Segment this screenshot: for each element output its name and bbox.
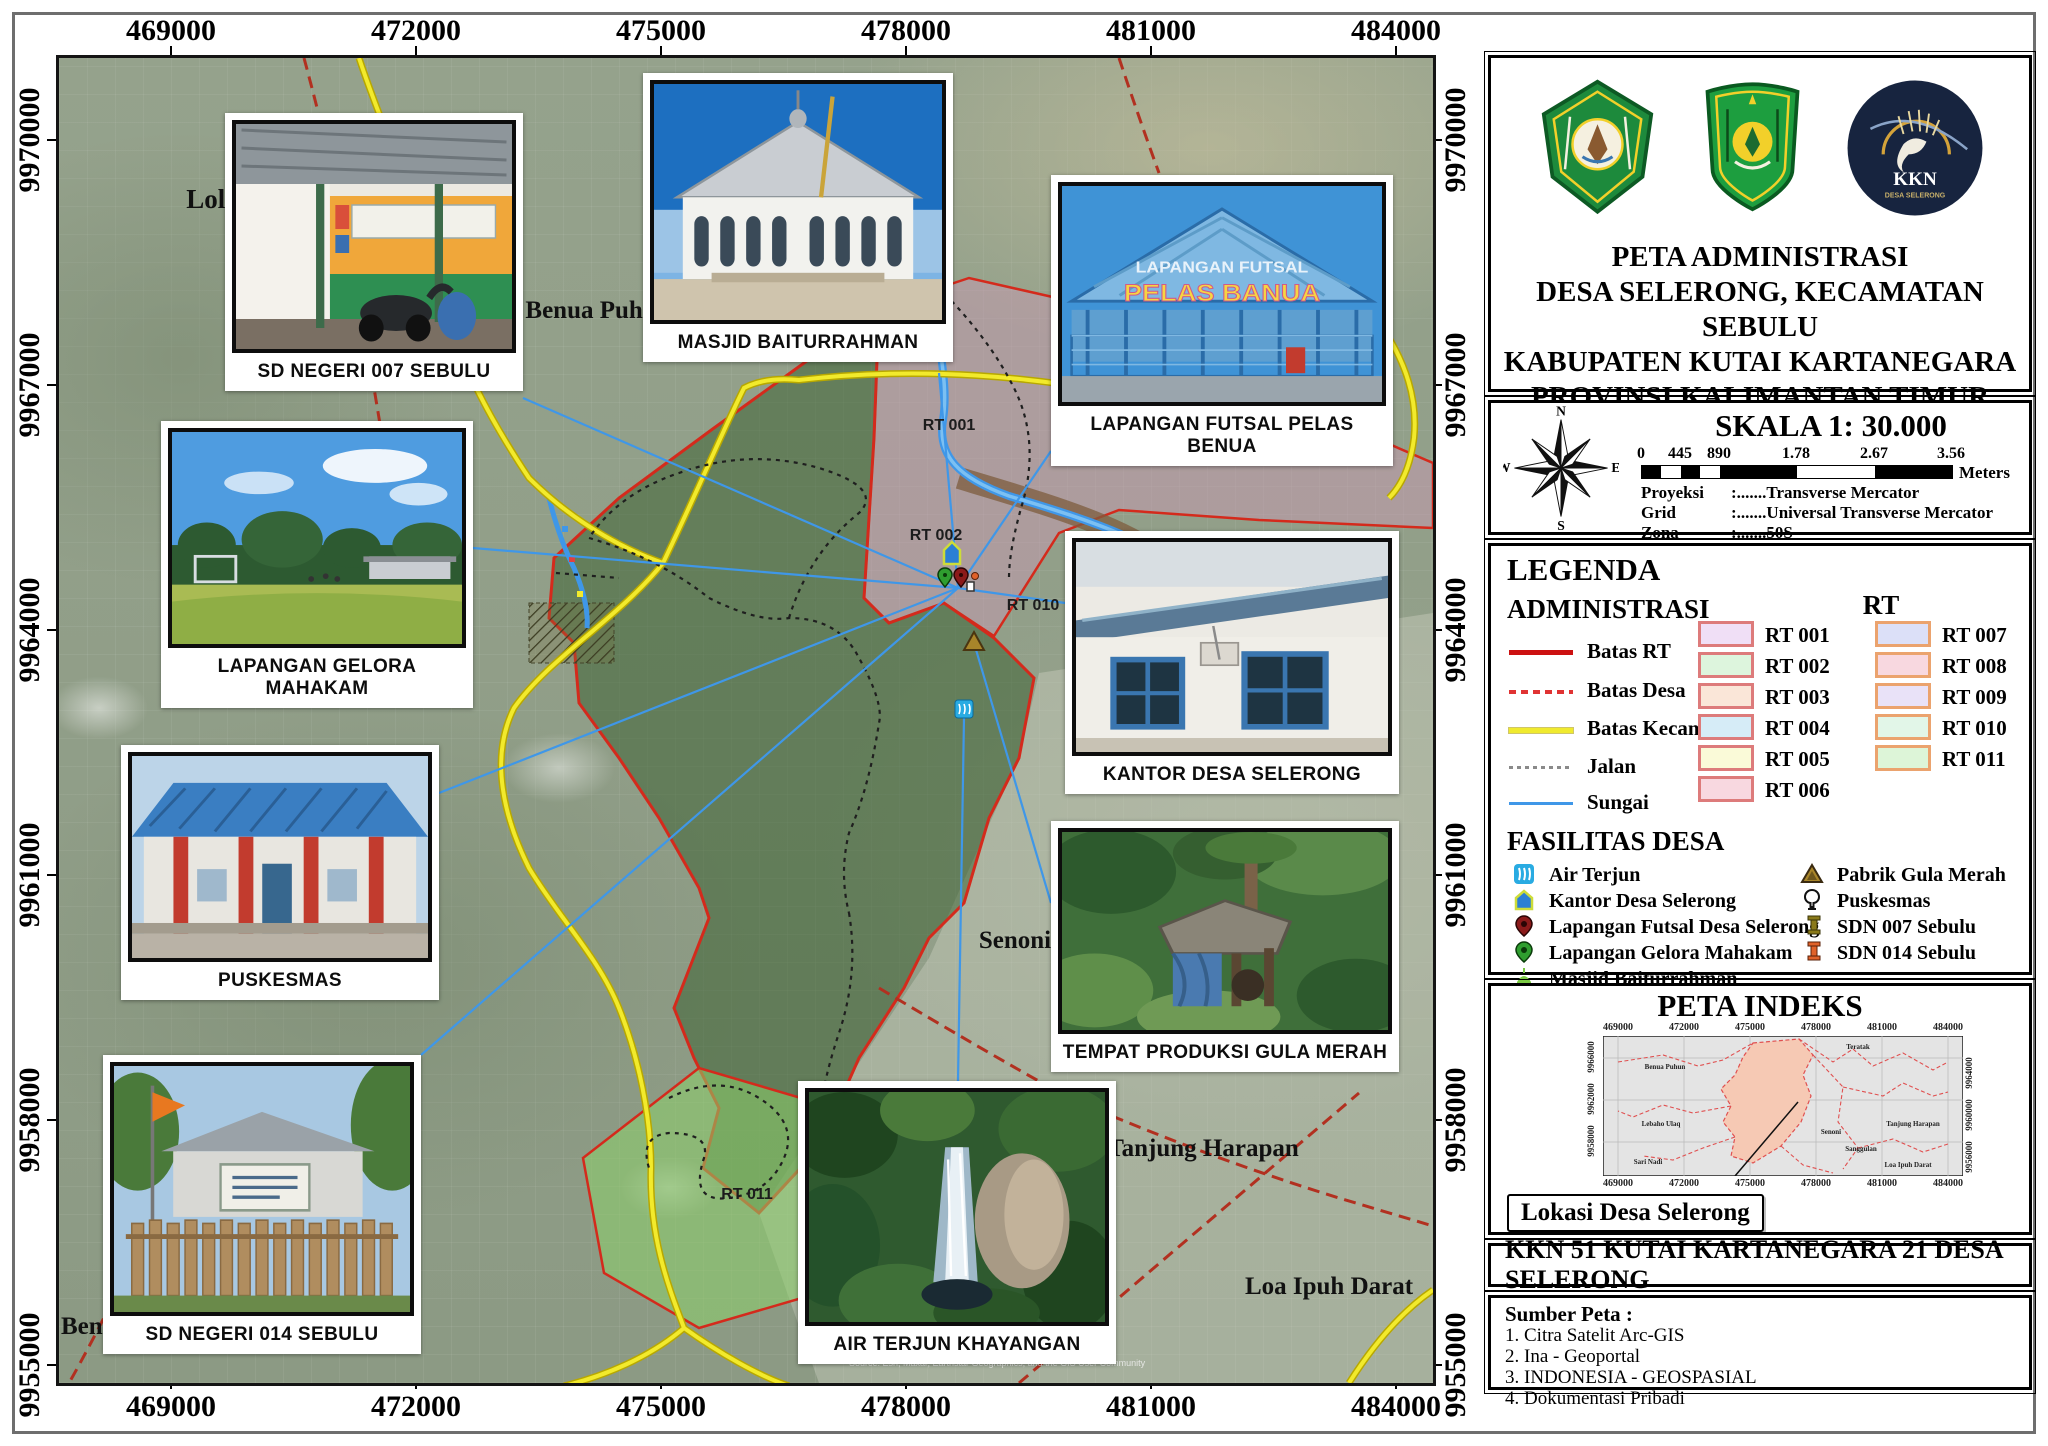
masjid-photo <box>650 80 946 324</box>
indeks-tick: 475000 <box>1735 1178 1765 1189</box>
scale-tick: 2.67 <box>1860 445 1888 463</box>
indeks-tick: 469000 <box>1603 1178 1633 1189</box>
logo-row: KKN DESA SELERONG <box>1491 78 2029 218</box>
lokasi-callout: Lokasi Desa Selerong <box>1507 1194 1764 1232</box>
indeks-y-label: 9958000 <box>1586 1111 1596 1171</box>
photo-caption: SD NEGERI 014 SEBULU <box>110 1316 414 1347</box>
photo-card-sd007: SD NEGERI 007 SEBULU <box>225 113 523 391</box>
pabrik-gula-icon <box>1799 862 1825 886</box>
lapangan-futsal-pin-icon <box>1511 914 1537 938</box>
indeks-tick: 472000 <box>1669 1022 1699 1033</box>
axis-label-y-right: 9970000 <box>1439 70 1473 210</box>
sumber-item: 2. Ina - Geoportal <box>1505 1346 1757 1367</box>
indeks-tick: 481000 <box>1867 1178 1897 1189</box>
futsal-sign-line1: LAPANGAN FUTSAL <box>1136 258 1309 276</box>
rt001-legend-label: RT 001 <box>1765 623 1830 648</box>
kkn-logo-text: KKN <box>1893 169 1937 190</box>
proj-label: Zona <box>1641 523 1731 543</box>
rt003-swatch <box>1698 683 1754 709</box>
gelora-photo <box>168 428 466 648</box>
rt010-swatch <box>1875 714 1931 740</box>
rt009-swatch <box>1875 683 1931 709</box>
proj-label: Proyeksi <box>1641 483 1731 503</box>
futsal-photo: LAPANGAN FUTSAL PELAS BANUA <box>1058 182 1386 406</box>
scale-bar <box>1641 465 1953 479</box>
scale-tick: 445 <box>1668 445 1692 463</box>
rt009-legend-label: RT 009 <box>1942 685 2007 710</box>
rt011-label: RT 011 <box>721 1186 773 1203</box>
axis-label-y-right: 9964000 <box>1439 560 1473 700</box>
airterjun-photo <box>805 1088 1109 1326</box>
sumber-item: 4. Dokumentasi Pribadi <box>1505 1388 1757 1409</box>
photo-card-futsal: LAPANGAN FUTSAL PELAS BANUA LAPANGAN FUT… <box>1051 175 1393 466</box>
indeks-place-senoni: Senoni <box>1821 1128 1841 1136</box>
indeks-tick: 478000 <box>1801 1022 1831 1033</box>
rt001-label: RT 001 <box>923 417 976 434</box>
axis-label-x-top: 475000 <box>616 14 706 48</box>
sumber-item: 3. INDONESIA - GEOSPASIAL <box>1505 1367 1757 1388</box>
axis-label-y-left: 9958000 <box>13 1050 47 1190</box>
rt004-swatch <box>1698 714 1754 740</box>
facility-label-kantor-desa: Kantor Desa Selerong <box>1549 890 1736 913</box>
title-panel: KKN DESA SELERONG PETA ADMINISTRASI DESA… <box>1488 55 2032 392</box>
logo-kabupaten-kutai-kartanegara <box>1690 78 1815 218</box>
axis-tick <box>47 139 56 141</box>
air-terjun-icon <box>1511 862 1537 886</box>
rt006-swatch <box>1698 776 1754 802</box>
sdn014-pushpin-icon <box>1801 940 1827 964</box>
photo-card-gelora: LAPANGAN GELORA MAHAKAM <box>161 421 473 708</box>
axis-label-y-left: 9961000 <box>13 805 47 945</box>
photo-card-masjid: MASJID BAITURRAHMAN <box>643 73 953 362</box>
proj-value: :.......Universal Transverse Mercator <box>1731 503 1993 523</box>
title-line-2: DESA SELERONG, KECAMATAN SEBULU <box>1491 275 2029 345</box>
indeks-tick: 472000 <box>1669 1178 1699 1189</box>
axis-label-x-bottom: 475000 <box>616 1390 706 1424</box>
photo-caption: MASJID BAITURRAHMAN <box>650 324 946 355</box>
photo-card-sd014: SD NEGERI 014 SEBULU <box>103 1055 421 1354</box>
logo-kkn-desa-selerong: KKN DESA SELERONG <box>1845 78 1985 218</box>
fasilitas-heading: FASILITAS DESA <box>1507 826 1724 857</box>
rt006-legend-label: RT 006 <box>1765 778 1830 803</box>
puskesmas-map-icon <box>967 582 974 591</box>
hatched-settlement-area <box>529 603 614 663</box>
axis-tick <box>1150 46 1152 55</box>
photo-caption: LAPANGAN GELORA MAHAKAM <box>168 648 466 701</box>
rt-heading: RT <box>1821 590 1941 621</box>
rt005-legend-label: RT 005 <box>1765 747 1830 772</box>
facility-label-puskesmas: Puskesmas <box>1837 890 1930 913</box>
rt004-legend-label: RT 004 <box>1765 716 1830 741</box>
axis-label-x-bottom: 472000 <box>371 1390 461 1424</box>
batas-kecamatan-symbol <box>1509 728 1573 733</box>
futsal-sign-line2: PELAS BANUA <box>1124 280 1320 306</box>
photo-caption: TEMPAT PRODUKSI GULA MERAH <box>1058 1034 1392 1065</box>
axis-tick <box>660 46 662 55</box>
sdn-map-icon <box>972 573 979 580</box>
indeks-tick: 469000 <box>1603 1022 1633 1033</box>
compass-w: W <box>1503 460 1511 475</box>
axis-label-y-right: 9961000 <box>1439 805 1473 945</box>
facility-label-pabrik-gula: Pabrik Gula Merah <box>1837 864 2006 887</box>
compass-s: S <box>1557 518 1565 533</box>
air-terjun-map-icon <box>955 700 973 718</box>
stream-marker <box>577 591 583 597</box>
puskesmas-icon <box>1799 888 1825 912</box>
scale-bar-labels: 0 445 890 1.78 2.67 3.56 <box>1641 445 1971 463</box>
gula-photo <box>1058 828 1392 1034</box>
axis-label-x-bottom: 481000 <box>1106 1390 1196 1424</box>
rt002-swatch <box>1698 652 1754 678</box>
compass-e: E <box>1611 460 1619 475</box>
scale-heading: SKALA 1: 30.000 <box>1641 408 2021 444</box>
axis-label-x-bottom: 478000 <box>861 1390 951 1424</box>
scale-tick: 0 <box>1637 445 1645 463</box>
photo-card-kantor: KANTOR DESA SELERONG <box>1065 531 1399 794</box>
rt011-legend-label: RT 011 <box>1942 747 2006 772</box>
sd014-photo <box>110 1062 414 1316</box>
puskesmas-photo <box>128 752 432 962</box>
kkn-logo-subtext: DESA SELERONG <box>1885 193 1946 200</box>
scale-unit: Meters <box>1959 463 2010 483</box>
rt008-swatch <box>1875 652 1931 678</box>
axis-tick <box>47 629 56 631</box>
axis-label-x-bottom: 484000 <box>1351 1390 1441 1424</box>
sumber-item: 1. Citra Satelit Arc-GIS <box>1505 1325 1757 1346</box>
sungai-symbol <box>1509 802 1573 805</box>
scale-tick: 890 <box>1707 445 1731 463</box>
axis-label-y-left: 9970000 <box>13 70 47 210</box>
kantor-photo <box>1072 538 1392 756</box>
stream-marker <box>562 526 568 532</box>
indeks-place-benua-puhun: Benua Puhun <box>1645 1063 1686 1071</box>
photo-caption: LAPANGAN FUTSAL PELAS BENUA <box>1058 406 1386 459</box>
indeks-tick: 484000 <box>1933 1178 1963 1189</box>
facility-label-sdn007: SDN 007 Sebulu <box>1837 916 1976 939</box>
peta-indeks-panel: PETA INDEKS 469000 472000 475000 478000 … <box>1488 983 2032 1235</box>
axis-tick <box>47 384 56 386</box>
scale-tick: 1.78 <box>1782 445 1810 463</box>
axis-tick <box>1395 46 1397 55</box>
lapangan-gelora-pin-icon <box>1511 940 1537 964</box>
axis-label-x-bottom: 469000 <box>126 1390 216 1424</box>
batas-rt-symbol <box>1509 650 1573 655</box>
place-label-loa-ipuh-darat: Loa Ipuh Darat <box>1245 1273 1414 1300</box>
proj-value: :.......50S <box>1731 523 1793 543</box>
legend-label-jalan: Jalan <box>1587 754 1636 779</box>
axis-tick <box>47 1119 56 1121</box>
compass-rose-icon: N E S W <box>1503 406 1619 534</box>
satellite-map: Loleng Benua Puhun Senoni Tanjung Harapa… <box>56 55 1436 1386</box>
legend-label-batas-rt: Batas RT <box>1587 639 1671 664</box>
axis-tick <box>47 1364 56 1366</box>
facility-label-air-terjun: Air Terjun <box>1549 864 1640 887</box>
indeks-tick: 484000 <box>1933 1022 1963 1033</box>
logo-universitas-mulawarman <box>1535 78 1660 218</box>
indeks-mini-map: Teratak Benua Puhun Lebaho Ulaq Senoni S… <box>1603 1036 1963 1176</box>
rt003-legend-label: RT 003 <box>1765 685 1830 710</box>
photo-caption: AIR TERJUN KHAYANGAN <box>805 1326 1109 1357</box>
axis-tick <box>905 46 907 55</box>
sumber-panel: Sumber Peta : 1. Citra Satelit Arc-GIS 2… <box>1488 1295 2032 1390</box>
rt005-swatch <box>1698 745 1754 771</box>
rt002-legend-label: RT 002 <box>1765 654 1830 679</box>
sumber-heading: Sumber Peta : <box>1505 1302 1633 1327</box>
rt008-legend-label: RT 008 <box>1942 654 2007 679</box>
kkn-banner: KKN 51 KUTAI KARTANEGARA 21 DESA SELERON… <box>1488 1243 2032 1287</box>
administrasi-heading: ADMINISTRASI <box>1507 594 1710 625</box>
axis-label-x-top: 484000 <box>1351 14 1441 48</box>
proj-label: Grid <box>1641 503 1731 523</box>
axis-label-y-left: 9964000 <box>13 560 47 700</box>
rt010-label: RT 010 <box>1007 597 1060 614</box>
photo-caption: SD NEGERI 007 SEBULU <box>232 353 516 384</box>
axis-label-y-right: 9955000 <box>1439 1295 1473 1435</box>
map-title: PETA ADMINISTRASI DESA SELERONG, KECAMAT… <box>1491 240 2029 415</box>
rt010-legend-label: RT 010 <box>1942 716 2007 741</box>
place-label-ben: Ben <box>61 1313 103 1340</box>
photo-card-gula: TEMPAT PRODUKSI GULA MERAH <box>1051 821 1399 1072</box>
indeks-tick: 478000 <box>1801 1178 1831 1189</box>
axis-tick <box>415 46 417 55</box>
place-label-senoni: Senoni <box>979 927 1051 954</box>
photo-card-airterjun: AIR TERJUN KHAYANGAN <box>798 1081 1116 1364</box>
batas-desa-symbol <box>1509 690 1573 694</box>
facility-label-sdn014: SDN 014 Sebulu <box>1837 942 1976 965</box>
photo-caption: PUSKESMAS <box>128 962 432 993</box>
rt007-swatch <box>1875 621 1931 647</box>
indeks-place-lebaho-ulaq: Lebaho Ulaq <box>1642 1120 1681 1128</box>
indeks-place-teratak: Teratak <box>1846 1043 1870 1051</box>
axis-label-x-top: 469000 <box>126 14 216 48</box>
rt007-legend-label: RT 007 <box>1942 623 2007 648</box>
axis-label-y-left: 9967000 <box>13 315 47 455</box>
axis-tick <box>170 46 172 55</box>
compass-n: N <box>1556 406 1566 419</box>
legend-panel: LEGENDA ADMINISTRASI RT Batas RT Batas D… <box>1488 543 2032 975</box>
axis-label-y-right: 9967000 <box>1439 315 1473 455</box>
proj-value: :.......Transverse Mercator <box>1731 483 1919 503</box>
indeks-place-sari-nadi: Sari Nadi <box>1634 1158 1663 1166</box>
indeks-place-loa-ipuh-darat: Loa Ipuh Darat <box>1884 1161 1932 1169</box>
indeks-place-tanjung-harapan: Tanjung Harapan <box>1886 1120 1940 1128</box>
title-line-1: PETA ADMINISTRASI <box>1491 240 2029 275</box>
facility-label-lapangan-futsal: Lapangan Futsal Desa Selerong <box>1549 916 1819 939</box>
kantor-desa-icon <box>1511 888 1537 912</box>
jalan-symbol <box>1509 766 1573 769</box>
legend-label-sungai: Sungai <box>1587 790 1649 815</box>
axis-label-y-left: 9955000 <box>13 1295 47 1435</box>
rt011-swatch <box>1875 745 1931 771</box>
photo-card-puskesmas: PUSKESMAS <box>121 745 439 1000</box>
photo-caption: KANTOR DESA SELERONG <box>1072 756 1392 787</box>
indeks-tick: 475000 <box>1735 1022 1765 1033</box>
sdn007-pushpin-icon <box>1801 914 1827 938</box>
legend-heading: LEGENDA <box>1507 552 1660 588</box>
axis-label-x-top: 481000 <box>1106 14 1196 48</box>
indeks-tick: 481000 <box>1867 1022 1897 1033</box>
axis-label-x-top: 478000 <box>861 14 951 48</box>
rt001-swatch <box>1698 621 1754 647</box>
axis-label-x-top: 472000 <box>371 14 461 48</box>
facility-label-lapangan-gelora: Lapangan Gelora Mahakam <box>1549 942 1792 965</box>
indeks-heading: PETA INDEKS <box>1491 988 2029 1024</box>
scale-panel: N E S W SKALA 1: 30.000 0 445 890 1.78 2… <box>1488 400 2032 535</box>
title-line-3: KABUPATEN KUTAI KARTANEGARA <box>1491 345 2029 380</box>
indeks-place-sanggulan: Sanggulan <box>1845 1145 1877 1153</box>
sd007-photo <box>232 120 516 353</box>
indeks-y-label: 9956000 <box>1964 1127 1974 1187</box>
legend-label-batas-desa: Batas Desa <box>1587 678 1686 703</box>
axis-tick <box>47 874 56 876</box>
place-label-tanjung-harapan: Tanjung Harapan <box>1107 1135 1299 1162</box>
axis-label-y-right: 9958000 <box>1439 1050 1473 1190</box>
rt002-label: RT 002 <box>910 527 963 544</box>
scale-tick: 3.56 <box>1937 445 1965 463</box>
